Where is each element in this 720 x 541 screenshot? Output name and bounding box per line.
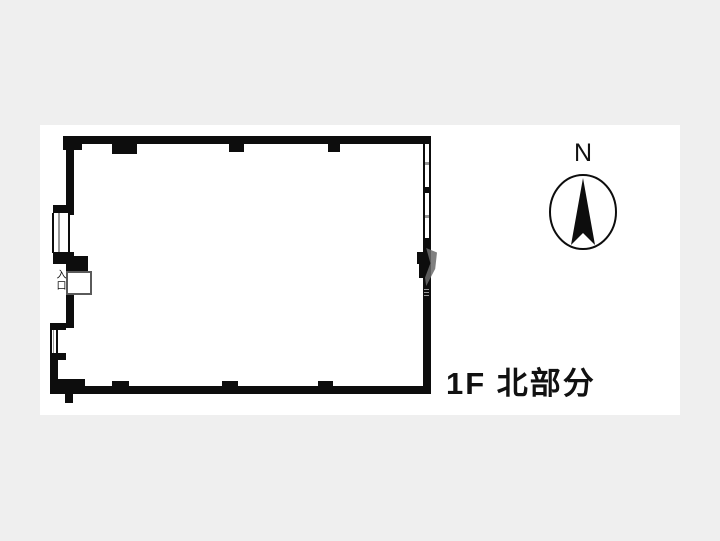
- window2-top-tick: [50, 323, 66, 330]
- watermark-dash-2: [424, 292, 429, 293]
- window1-glass-line: [58, 213, 60, 253]
- right-wall-protrusion-lower: [419, 262, 426, 278]
- floorplan-card: 入口: [40, 125, 680, 415]
- right-window-separator-2: [425, 215, 429, 218]
- right-window-mullion: [425, 187, 429, 193]
- pillar-top-2: [229, 144, 244, 152]
- compass-north-label: N: [545, 139, 621, 168]
- window1: [52, 213, 70, 253]
- watermark-dash-1: [424, 289, 429, 290]
- compass-graphic: [545, 165, 635, 257]
- compass-rose: N: [545, 137, 635, 257]
- pillar-bottom-2: [222, 381, 238, 387]
- wall-bottom-left-corner-block: [50, 379, 85, 394]
- wall-bottom: [50, 386, 431, 394]
- pillar-top-1: [112, 144, 137, 154]
- window2: [50, 330, 58, 353]
- pillar-bottom-3: [318, 381, 333, 387]
- plan-title: 1F 北部分: [446, 358, 596, 403]
- wall-left-upper: [66, 144, 74, 206]
- right-window-separator-1: [425, 162, 429, 165]
- right-wall-watermark-dashes: [423, 289, 430, 298]
- entrance-door: [66, 271, 92, 295]
- pillar-top-3: [328, 144, 340, 152]
- wall-top: [63, 136, 431, 144]
- wall-bottom-stub: [65, 394, 73, 403]
- pillar-bottom-1: [112, 381, 129, 387]
- wall-left-lower: [66, 295, 74, 328]
- window2-glass-line: [53, 330, 54, 353]
- entrance-label: 入口: [53, 269, 65, 295]
- right-window-band: [423, 144, 431, 240]
- watermark-dash-3: [424, 295, 429, 296]
